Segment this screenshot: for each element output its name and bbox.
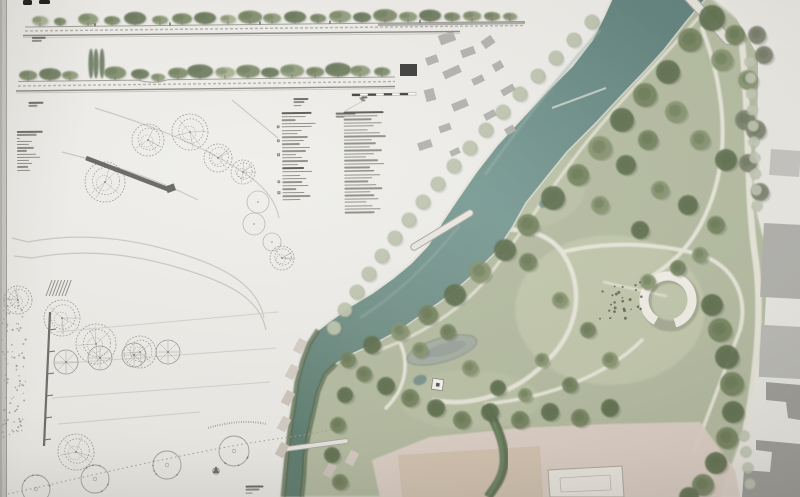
scale-bar — [352, 94, 360, 96]
board-clip-tab — [39, 0, 50, 4]
stipple-dot — [16, 365, 18, 367]
orchard-tree — [156, 340, 180, 364]
allee-tree — [513, 87, 527, 101]
stipple-dot — [4, 300, 5, 301]
allee-tree — [375, 249, 389, 263]
stipple-dot — [3, 310, 4, 311]
allee-tree — [350, 285, 364, 299]
street-tree — [748, 121, 759, 132]
masterplan-graphic — [0, 0, 800, 497]
scale-bar — [384, 93, 392, 95]
stipple-dot — [20, 327, 22, 329]
allee-tree — [531, 69, 545, 83]
scale-bar — [376, 93, 384, 95]
stipple-dot — [2, 431, 4, 433]
stipple-dot — [25, 381, 26, 382]
stipple-dot — [12, 351, 13, 352]
stipple-dot — [23, 393, 24, 394]
stipple-dot — [15, 387, 17, 389]
stipple-dot — [18, 323, 19, 324]
allee-tree — [567, 33, 581, 47]
allee-tree — [416, 195, 430, 209]
stipple-dot — [5, 358, 7, 360]
stipple-dot — [8, 312, 10, 314]
stipple-dot — [13, 396, 14, 397]
allee-tree — [431, 177, 445, 191]
stipple-dot — [7, 419, 9, 421]
park-building-marker — [431, 378, 443, 390]
stipple-dot — [7, 305, 9, 307]
stipple-dot — [22, 419, 23, 420]
orchard-tree — [122, 343, 146, 367]
allee-tree — [496, 105, 510, 119]
dark-building — [400, 64, 417, 76]
stipple-dot — [20, 424, 21, 425]
street-tree — [752, 201, 763, 212]
stipple-dot — [4, 353, 5, 354]
stipple-dot — [17, 405, 19, 407]
stipple-dot — [3, 319, 4, 320]
stipple-dot — [6, 324, 8, 326]
stipple-dot — [18, 385, 20, 387]
stipple-dot — [19, 420, 21, 422]
stipple-dot — [15, 311, 16, 312]
stipple-dot — [11, 398, 12, 399]
stipple-dot — [16, 409, 18, 411]
stipple-dot — [21, 352, 23, 354]
stipple-dot — [23, 357, 25, 359]
orchard-tree — [54, 350, 78, 374]
stipple-dot — [16, 430, 17, 431]
stipple-dot — [16, 389, 18, 391]
allee-tree — [388, 231, 402, 245]
stipple-dot — [16, 328, 18, 330]
allee-tree — [479, 123, 493, 137]
street-tree — [747, 105, 758, 116]
stipple-dot — [22, 384, 24, 386]
stipple-dot — [4, 420, 6, 422]
stipple-dot — [6, 326, 8, 328]
street-tree — [749, 153, 760, 164]
stipple-dot — [19, 380, 21, 382]
orchard-tree — [88, 346, 112, 370]
stipple-dot — [7, 382, 9, 384]
stipple-dot — [19, 383, 21, 385]
allee-tree — [447, 159, 461, 173]
scale-bar — [400, 93, 408, 95]
poplar-tree — [88, 49, 93, 79]
stipple-dot — [11, 329, 13, 331]
stipple-dot — [13, 421, 15, 423]
allee-tree — [585, 15, 599, 29]
allee-tree — [338, 303, 352, 317]
stipple-dot — [22, 316, 24, 318]
stipple-dot — [1, 339, 2, 340]
scale-bar — [368, 94, 376, 96]
stipple-dot — [9, 412, 11, 414]
stipple-dot — [17, 431, 19, 433]
allee-tree — [463, 141, 477, 155]
allee-tree — [549, 51, 563, 65]
stipple-dot — [21, 430, 22, 431]
masterplan-board-photo — [0, 0, 800, 497]
street-tree — [750, 169, 761, 180]
allee-tree — [402, 213, 416, 227]
board-edge — [0, 0, 7, 497]
street-tree — [749, 137, 760, 148]
street-tree — [751, 185, 762, 196]
scale-bar — [392, 93, 400, 95]
stipple-dot — [16, 369, 18, 371]
stipple-dot — [3, 409, 5, 411]
street-tree — [745, 73, 756, 84]
stipple-dot — [18, 375, 19, 376]
board-clip-tab — [23, 0, 32, 5]
stipple-dot — [11, 356, 12, 357]
stipple-dot — [25, 338, 27, 340]
street-tree — [745, 57, 756, 68]
scale-bar — [408, 93, 416, 95]
stipple-dot — [6, 312, 8, 314]
stipple-dot — [2, 351, 4, 353]
stipple-dot — [18, 418, 20, 420]
poplar-tree — [99, 48, 104, 78]
stipple-dot — [4, 380, 5, 381]
poplar-tree — [93, 49, 98, 79]
stipple-dot — [5, 397, 6, 398]
stipple-dot — [3, 436, 5, 438]
stipple-dot — [23, 400, 25, 402]
allee-tree — [362, 267, 376, 281]
stipple-dot — [11, 430, 12, 431]
stipple-dot — [5, 423, 6, 424]
stipple-dot — [5, 374, 7, 376]
stipple-dot — [16, 323, 17, 324]
stipple-dot — [11, 344, 13, 346]
stipple-dot — [1, 426, 2, 427]
stipple-dot — [12, 431, 14, 433]
stipple-dot — [14, 410, 16, 412]
stipple-dot — [6, 330, 8, 332]
street-tree — [746, 89, 757, 100]
stipple-dot — [21, 309, 23, 311]
stipple-dot — [17, 426, 19, 428]
allee-tree — [327, 321, 341, 335]
stipple-dot — [9, 402, 11, 404]
stipple-dot — [23, 343, 25, 345]
stipple-dot — [21, 384, 22, 385]
stipple-dot — [7, 363, 8, 364]
scale-bar — [360, 94, 368, 96]
stipple-dot — [18, 354, 20, 356]
stipple-dot — [22, 366, 24, 368]
stipple-dot — [9, 434, 10, 435]
stipple-dot — [5, 313, 7, 315]
stipple-dot — [7, 378, 9, 380]
stipple-dot — [2, 323, 4, 325]
stipple-dot — [2, 424, 4, 426]
stipple-dot — [17, 302, 19, 304]
stipple-dot — [13, 357, 15, 359]
stipple-dot — [18, 329, 20, 331]
stipple-dot — [7, 351, 9, 353]
